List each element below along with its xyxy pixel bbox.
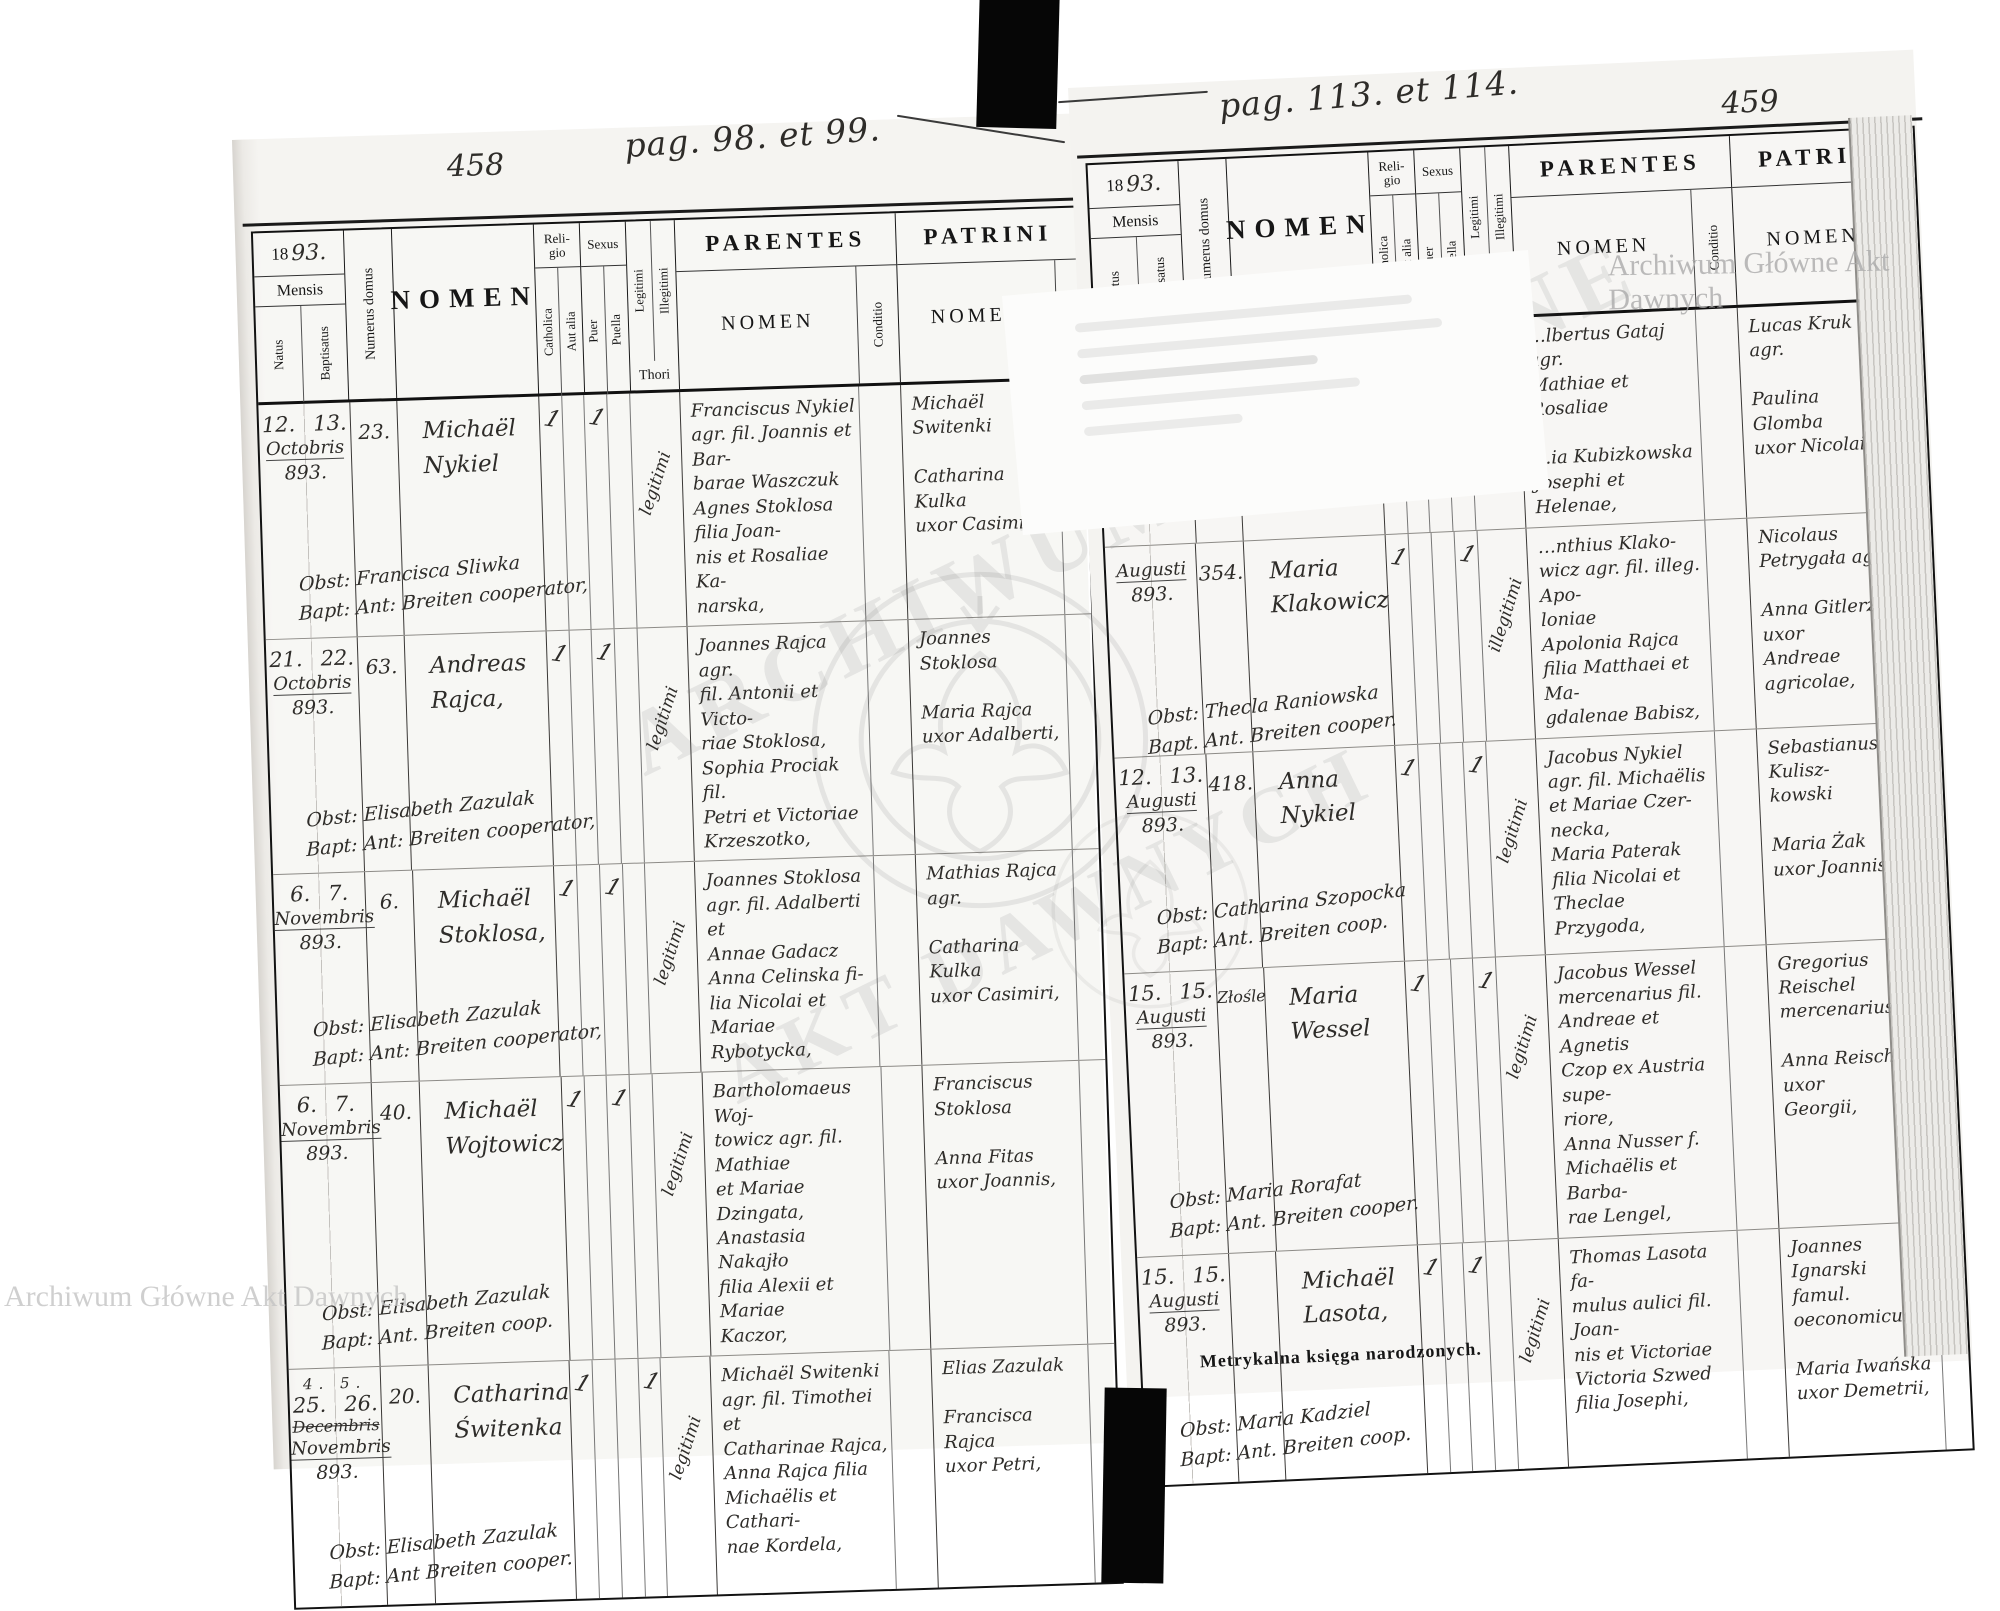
privacy-cover [1002,250,1549,535]
aut-alia-header: Aut alia [563,311,579,351]
page-annotation: pag. 98. et 99. [623,109,882,165]
thori-header: Thori [630,367,679,385]
parentes-conditio-header: Conditio [870,301,887,347]
record-row: 4. 5. 25.26. Decembris Novembris 893. 20… [289,1344,1122,1608]
sexus-header: Sexus [580,222,626,267]
parents-conditio [890,1350,939,1589]
parents-entry: Bartholomaeus Woj- towicz agr. fil. Math… [702,1067,890,1356]
folio-number: 459 [1721,84,1780,122]
religio-header: Reli- gio [1368,150,1415,196]
table-header: 18 93. Mensis Natus Baptisatus Numerus d… [253,207,1084,405]
year-box: 18 93. [1088,161,1180,209]
page-annotation: pag. 113. et 114. [1217,62,1520,125]
legitimacy-note: legitimi [645,862,701,1073]
parents-entry: Michaël Switenki agr. fil. Timothei et C… [711,1351,897,1595]
record-row: 6.7. Novembris 893. 40. Michaël Wojtowic… [280,1060,1115,1370]
parentes-nomen-header: NOMEN [677,266,861,389]
parents-entry: Jacobus Wessel mercenarius fil. Andreae … [1546,947,1738,1238]
parents-entry: Jacobus Nykiel agr. fil. Michaëlis et Ma… [1536,731,1725,954]
legitimi-header: Legitimi [631,270,647,314]
parentes-header: PARENTES [675,213,896,272]
puella-header: Puella [609,314,625,346]
nomen-header: NOMEN [392,225,539,398]
legitimi-header: Legitimi [1466,196,1483,240]
scan-gap [1101,1387,1166,1583]
patrini-entry: Elias Zazulak Francisca Rajca uxor Petri… [931,1345,1096,1588]
watermark-eagle-emblem [1040,800,1260,1020]
year-box: 18 93. [253,231,345,278]
scanned-register-spread: { "scan": { "left_folio": "458", "left_p… [0,0,2000,1573]
parents-entry: Thomas Lasota fa- mulus aulici fil. Joan… [1559,1230,1748,1466]
natus-header: Natus [271,339,288,370]
folio-number: 458 [446,147,504,184]
baptisatus-header: Baptisatus [316,326,334,381]
numerus-domus-header: Numerus domus [361,268,380,361]
puer-header: Puer [586,319,602,342]
religio-header: Reli- gio [534,223,580,268]
illegitimi-header: Illegitimi [1491,193,1508,240]
watermark-text: Archiwum Główne Akt Dawnych [1607,243,2000,318]
record-row: Augusti 893. 354. Maria Klakowicz 1 1 il… [1105,510,1940,758]
mensis-header: Mensis [1090,205,1182,239]
illegitimi-header: Illegitimi [656,267,672,314]
patrini-entry: Franciscus Stoklosa Anna Fitas uxor Joan… [923,1061,1089,1349]
catholica-header: Catholica [540,308,556,356]
parents-entry: …nthius Klako- wicz agr. fil. illeg. Apo… [1527,520,1715,738]
watermark-text: Archiwum Główne Akt Dawnych [4,1280,408,1314]
mensis-header: Mensis [254,275,345,308]
patrini-header: PATRINI [896,207,1080,265]
scan-gap [976,0,1060,129]
sexus-header: Sexus [1414,148,1461,194]
